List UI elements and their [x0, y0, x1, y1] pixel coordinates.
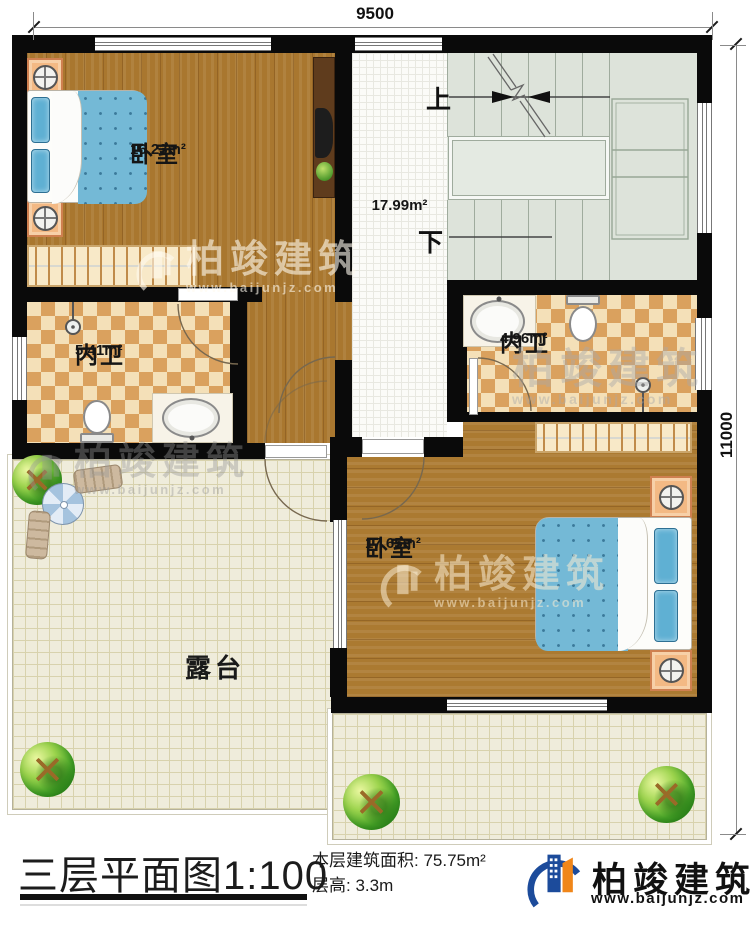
dimension-extension [33, 12, 34, 40]
dimension-right-line [736, 45, 737, 835]
dimension-extension [720, 45, 746, 46]
dimension-extension [720, 834, 746, 835]
dimension-extension [712, 12, 713, 40]
brand-logo-icon [524, 849, 586, 911]
title-underline [20, 894, 307, 900]
dimension-top-value: 9500 [340, 4, 410, 24]
room-area: 5.41m² [75, 343, 123, 359]
brand-website: www.baijunjz.com [591, 890, 744, 907]
dimension-right-value: 11000 [717, 400, 737, 470]
dimension-top-line [33, 27, 713, 28]
room-area: 4.96m² [500, 331, 548, 347]
room-area: 17.65m² [365, 536, 421, 552]
drawing-title: 三层平面图1:100 [18, 843, 328, 901]
floor-area-value: 75.75m² [423, 851, 485, 870]
room-area: 16.23m² [130, 142, 186, 158]
floor-stats: 本层建筑面积: 75.75m² 层高: 3.3m [312, 849, 486, 898]
floor-height-label: 层高: [312, 876, 351, 895]
plan-symbols-overlay [0, 0, 750, 925]
floor-plan-canvas: 卧室 16.23m² 17.99m² 上 下 内卫 5.41m² 内卫 4.96… [0, 0, 750, 925]
floor-area-label: 本层建筑面积: [312, 851, 419, 870]
hall-area-label: 17.99m² [352, 197, 447, 214]
terrace-label: 露台 [185, 648, 245, 685]
stair-down-label: 下 [418, 223, 443, 259]
title-underline-shadow [20, 904, 307, 906]
floor-height-value: 3.3m [355, 876, 393, 895]
stair-up-label: 上 [426, 80, 451, 116]
